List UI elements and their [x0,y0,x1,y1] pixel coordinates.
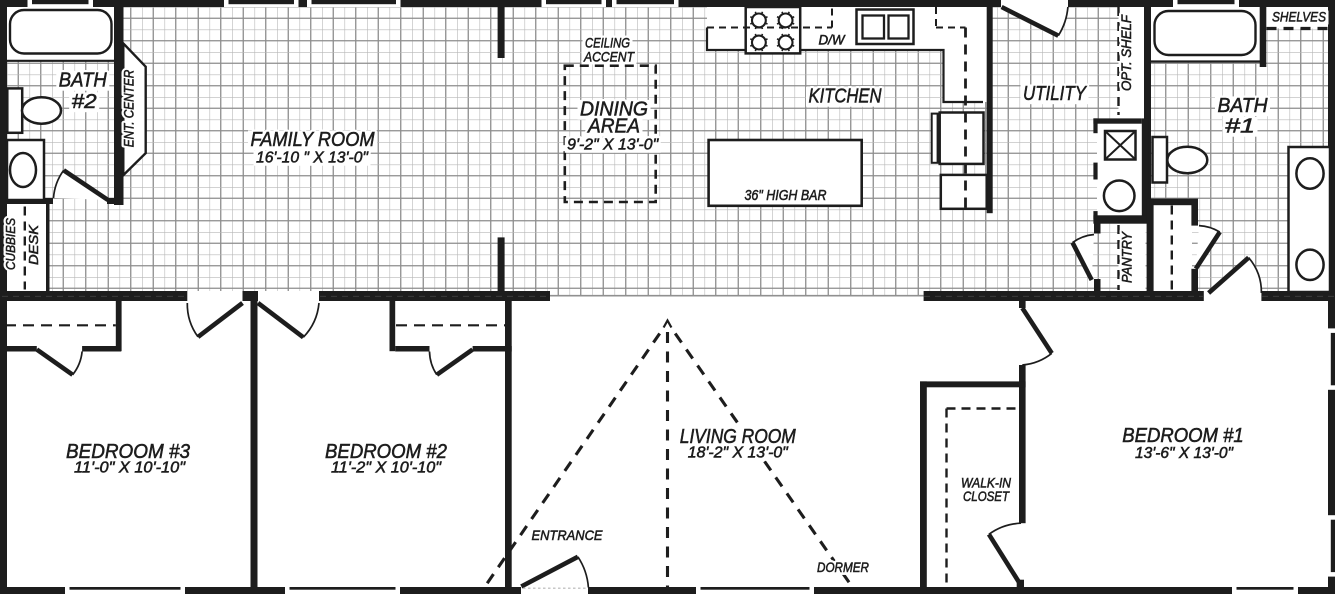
svg-text:BEDROOM #1: BEDROOM #1 [1122,425,1244,447]
svg-text:36" HIGH BAR: 36" HIGH BAR [745,188,827,204]
svg-text:16'-10 " X 13'-0": 16'-10 " X 13'-0" [256,150,369,167]
svg-text:AREA: AREA [587,116,640,138]
svg-text:BATH: BATH [1218,95,1269,117]
svg-text:UTILITY: UTILITY [1023,83,1087,105]
svg-text:11'-0" X 10'-10": 11'-0" X 10'-10" [74,460,187,477]
svg-text:KITCHEN: KITCHEN [809,86,882,108]
svg-text:9'-2" X 13'-0": 9'-2" X 13'-0" [567,137,660,154]
svg-text:11'-2" X 10'-10": 11'-2" X 10'-10" [331,460,443,477]
svg-text:FAMILY ROOM: FAMILY ROOM [251,129,375,151]
svg-text:ACCENT: ACCENT [583,49,635,65]
svg-text:#2: #2 [72,91,97,113]
svg-text:PANTRY: PANTRY [1120,231,1135,283]
svg-text:13'-6" X 13'-0": 13'-6" X 13'-0" [1135,445,1234,462]
svg-text:OPT. SHELF: OPT. SHELF [1119,14,1134,91]
svg-text:SHELVES: SHELVES [1272,9,1327,25]
svg-text:ENTRANCE: ENTRANCE [532,527,604,543]
svg-text:DESK: DESK [26,224,41,265]
svg-text:BATH: BATH [59,70,108,92]
svg-text:CLOSET: CLOSET [963,488,1010,504]
svg-text:18'-2" X 13'-0": 18'-2" X 13'-0" [688,445,790,462]
svg-text:D/W: D/W [819,32,847,48]
svg-text:DORMER: DORMER [817,559,869,575]
svg-text:ENT. CENTER: ENT. CENTER [122,70,137,148]
svg-text:#1: #1 [1225,116,1255,138]
svg-text:CUBBIES: CUBBIES [3,218,18,270]
